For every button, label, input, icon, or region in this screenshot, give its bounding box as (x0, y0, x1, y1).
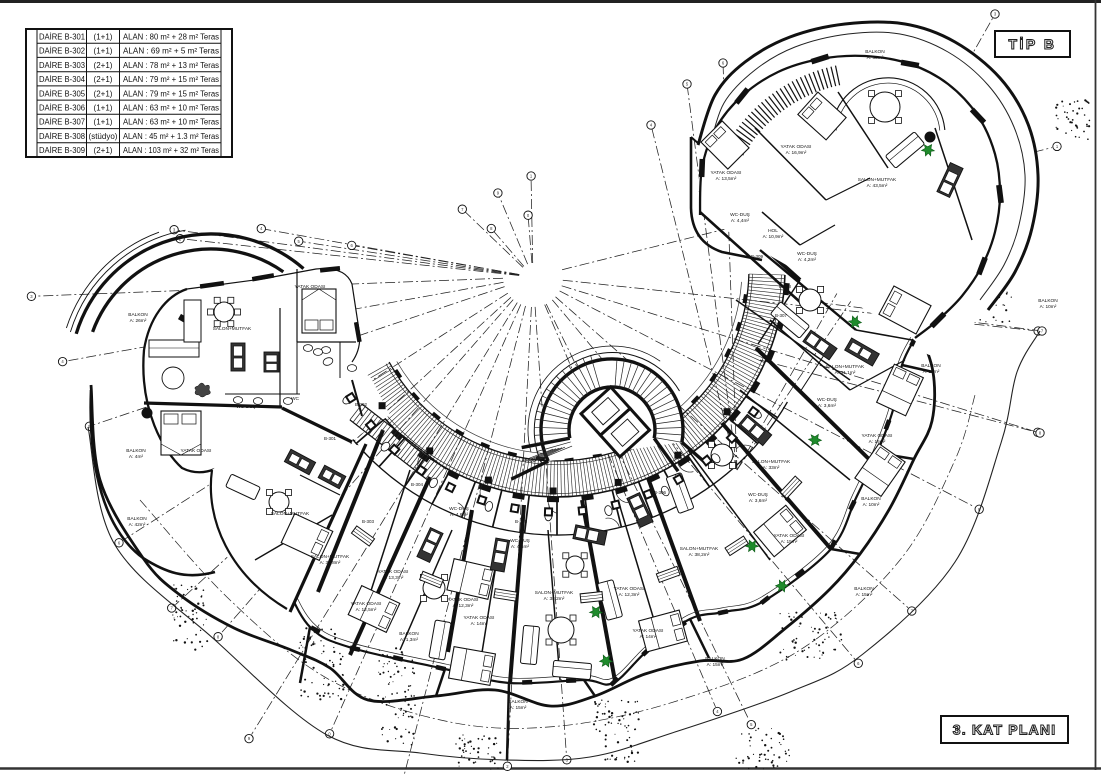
svg-text:WC: WC (291, 396, 300, 402)
svg-text:YATAK ODASI: YATAK ODASI (448, 597, 479, 603)
svg-text:DAİRE B-307: DAİRE B-307 (39, 118, 86, 127)
svg-text:(2+1): (2+1) (94, 146, 113, 155)
svg-text:WC-DUŞ: WC-DUŞ (236, 404, 256, 410)
svg-text:YATAK ODASI: YATAK ODASI (711, 170, 742, 176)
svg-text:YATAK ODASI: YATAK ODASI (464, 615, 495, 621)
svg-text:BALKON: BALKON (1038, 298, 1058, 304)
svg-text:A: 10m²: A: 10m² (863, 502, 880, 508)
svg-text:BALKON: BALKON (508, 699, 528, 705)
svg-text:A: 4,6m²: A: 4,6m² (450, 512, 469, 518)
svg-text:ALAN : 79 m² + 15 m² Teras: ALAN : 79 m² + 15 m² Teras (123, 75, 219, 84)
svg-text:A: 15m²: A: 15m² (707, 662, 724, 668)
svg-text:A: 43,5m²: A: 43,5m² (867, 183, 888, 189)
svg-text:SALON+MUTFAK: SALON+MUTFAK (271, 511, 310, 517)
svg-text:DAİRE B-301: DAİRE B-301 (39, 32, 86, 41)
svg-text:ALAN : 80 m² + 28 m² Teras: ALAN : 80 m² + 28 m² Teras (123, 32, 219, 41)
svg-text:A: 12,5m²: A: 12,5m² (356, 607, 377, 613)
svg-text:BALKON: BALKON (705, 656, 725, 662)
svg-text:DAİRE B-303: DAİRE B-303 (39, 61, 86, 70)
svg-text:YATAK ODASI: YATAK ODASI (181, 448, 212, 454)
svg-text:WC-DUŞ: WC-DUŞ (748, 492, 768, 498)
svg-text:WC-DUŞ: WC-DUŞ (797, 251, 817, 257)
svg-text:(1+1): (1+1) (94, 32, 113, 41)
svg-text:B-303: B-303 (362, 519, 375, 524)
svg-text:WC-DUŞ: WC-DUŞ (449, 506, 469, 512)
svg-text:B-306: B-306 (654, 490, 667, 495)
svg-text:SALON+MUTFAK: SALON+MUTFAK (535, 590, 574, 596)
svg-text:A: 15m²: A: 15m² (856, 592, 873, 598)
svg-text:DAİRE B-306: DAİRE B-306 (39, 104, 86, 113)
svg-text:(1+1): (1+1) (94, 47, 113, 56)
svg-text:BALKON: BALKON (861, 496, 881, 502)
svg-text:BALKON: BALKON (128, 312, 148, 318)
svg-text:A: 3,6m²: A: 3,6m² (749, 498, 768, 504)
svg-text:HOL: HOL (768, 228, 778, 234)
svg-text:A: 15m²: A: 15m² (510, 705, 527, 711)
svg-text:A: 38,2m²: A: 38,2m² (689, 552, 710, 558)
svg-text:A: 33,8m²: A: 33,8m² (320, 560, 341, 566)
svg-text:B-304: B-304 (411, 482, 424, 487)
svg-text:A: 15m²: A: 15m² (869, 439, 886, 445)
svg-text:(2+1): (2+1) (94, 75, 113, 84)
svg-text:A: 26m²: A: 26m² (130, 318, 147, 324)
svg-text:A: 16,9m²: A: 16,9m² (786, 150, 807, 156)
svg-text:ALAN : 69 m² + 5 m² Teras: ALAN : 69 m² + 5 m² Teras (123, 47, 219, 56)
svg-text:ALAN : 78 m² + 13 m² Teras: ALAN : 78 m² + 13 m² Teras (123, 61, 219, 70)
svg-text:A: 4,6m²: A: 4,6m² (511, 544, 530, 550)
svg-text:B-308: B-308 (779, 284, 792, 289)
svg-text:DAİRE B-304: DAİRE B-304 (39, 75, 86, 84)
svg-text:A: 13,5m²: A: 13,5m² (716, 176, 737, 182)
svg-text:A: 4,2m²: A: 4,2m² (798, 257, 817, 263)
svg-text:ALAN : 63 m² + 10 m² Teras: ALAN : 63 m² + 10 m² Teras (123, 104, 219, 113)
svg-text:YATAK ODASI: YATAK ODASI (781, 144, 812, 150)
svg-text:A: 42m²: A: 42m² (129, 522, 146, 528)
svg-text:B-302: B-302 (355, 402, 368, 407)
svg-text:YATAK ODASI: YATAK ODASI (614, 586, 645, 592)
svg-text:BALKON: BALKON (127, 516, 147, 522)
svg-text:A: 15m²: A: 15m² (781, 539, 798, 545)
svg-text:A: 32m²: A: 32m² (867, 55, 884, 61)
svg-text:BALKON: BALKON (854, 586, 874, 592)
svg-text:DAİRE B-309: DAİRE B-309 (39, 146, 86, 155)
svg-text:BALKON: BALKON (126, 448, 146, 454)
svg-text:DAİRE B-305: DAİRE B-305 (39, 89, 86, 98)
svg-text:(2+1): (2+1) (94, 61, 113, 70)
svg-text:(2+1): (2+1) (94, 89, 113, 98)
svg-text:A: 4m²: A: 4m² (129, 454, 144, 460)
svg-text:DAİRE B-308: DAİRE B-308 (39, 132, 86, 141)
svg-text:BALKON: BALKON (921, 363, 941, 369)
svg-text:(stüdyo): (stüdyo) (89, 132, 118, 141)
svg-text:BALKON: BALKON (865, 49, 885, 55)
svg-text:A: 1,3m²: A: 1,3m² (400, 637, 419, 643)
svg-text:ALAN : 63 m² + 10 m² Teras: ALAN : 63 m² + 10 m² Teras (123, 118, 219, 127)
svg-text:A: 4,4m²: A: 4,4m² (731, 218, 750, 224)
svg-text:A: 13,3m²: A: 13,3m² (383, 575, 404, 581)
svg-text:A: 10m²: A: 10m² (923, 369, 940, 375)
svg-text:B-307: B-307 (775, 313, 788, 318)
svg-text:A: 3,6m²: A: 3,6m² (818, 403, 837, 409)
svg-text:WC-DUŞ: WC-DUŞ (510, 538, 530, 544)
svg-text:YATAK ODASI: YATAK ODASI (862, 433, 893, 439)
svg-text:(1+1): (1+1) (94, 104, 113, 113)
svg-text:YATAK ODASI: YATAK ODASI (351, 601, 382, 607)
svg-text:ALAN : 103 m² + 32 m² Teras: ALAN : 103 m² + 32 m² Teras (123, 146, 219, 155)
svg-text:YATAK ODASI: YATAK ODASI (378, 569, 409, 575)
svg-text:YATAK ODASI: YATAK ODASI (774, 533, 805, 539)
svg-text:A: 12,3m²: A: 12,3m² (453, 603, 474, 609)
svg-text:WC-DUŞ: WC-DUŞ (817, 397, 837, 403)
svg-text:3. KAT PLANI: 3. KAT PLANI (953, 722, 1057, 738)
svg-text:B-309: B-309 (751, 254, 764, 259)
svg-text:A: 10,9m²: A: 10,9m² (763, 234, 784, 240)
svg-text:SALON+MUTFAK: SALON+MUTFAK (213, 326, 252, 332)
svg-text:A: 12,3m²: A: 12,3m² (619, 592, 640, 598)
svg-text:BALKON: BALKON (399, 631, 419, 637)
svg-text:WC-DUŞ: WC-DUŞ (730, 212, 750, 218)
svg-text:A: 33m²: A: 33m² (763, 465, 780, 471)
svg-text:A: 14m²: A: 14m² (640, 634, 657, 640)
svg-text:B-305: B-305 (515, 519, 528, 524)
svg-text:SALON+MUTFAK: SALON+MUTFAK (311, 554, 350, 560)
svg-text:A: 31,1m²: A: 31,1m² (835, 370, 856, 376)
svg-text:A: 10m²: A: 10m² (1040, 304, 1057, 310)
svg-text:YATAK ODASI: YATAK ODASI (633, 628, 664, 634)
svg-text:DAİRE B-302: DAİRE B-302 (39, 47, 86, 56)
svg-text:ALAN : 79 m² + 15 m² Teras: ALAN : 79 m² + 15 m² Teras (123, 89, 219, 98)
svg-text:SALON+MUTFAK: SALON+MUTFAK (752, 459, 791, 465)
svg-text:A: 38,2m²: A: 38,2m² (544, 596, 565, 602)
svg-text:SALON+MUTFAK: SALON+MUTFAK (680, 546, 719, 552)
svg-text:(1+1): (1+1) (94, 118, 113, 127)
svg-text:B-301: B-301 (324, 436, 337, 441)
svg-text:SALON+MUTFAK: SALON+MUTFAK (858, 177, 897, 183)
svg-text:TİP B: TİP B (1008, 36, 1056, 52)
svg-text:SALON+MUTFAK: SALON+MUTFAK (826, 364, 865, 370)
svg-text:YATAK ODASI: YATAK ODASI (295, 284, 326, 290)
svg-text:A: 14m²: A: 14m² (471, 621, 488, 627)
svg-text:ALAN : 45 m² + 1.3 m² Teras: ALAN : 45 m² + 1.3 m² Teras (123, 132, 219, 141)
